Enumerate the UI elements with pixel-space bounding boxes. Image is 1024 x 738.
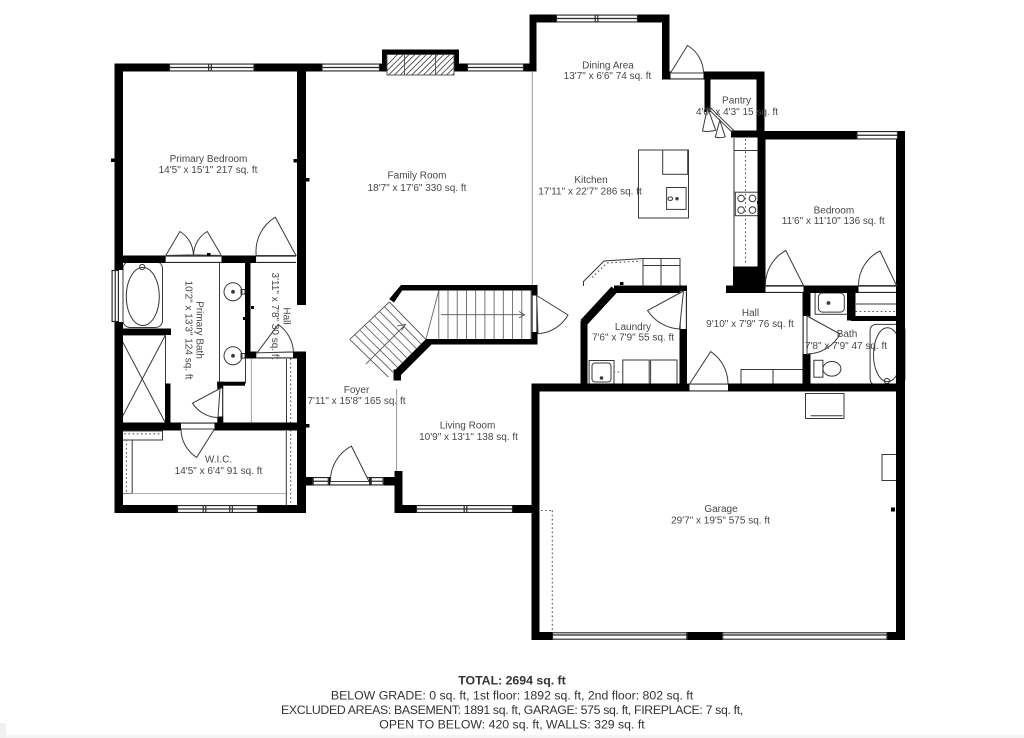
svg-text:TOTAL: 2694 sq. ft: TOTAL: 2694 sq. ft (458, 673, 566, 687)
svg-text:EXCLUDED AREAS: BASEMENT: 1891: EXCLUDED AREAS: BASEMENT: 1891 sq. ft, G… (281, 703, 743, 717)
svg-text:Family Room: Family Room (388, 171, 447, 182)
svg-text:W.I.C.: W.I.C. (205, 455, 232, 466)
svg-text:Garage: Garage (704, 504, 738, 515)
svg-text:4'0" x 4'3" 15 sq. ft: 4'0" x 4'3" 15 sq. ft (696, 107, 778, 118)
svg-text:17'11" x 22'7" 286 sq. ft: 17'11" x 22'7" 286 sq. ft (538, 187, 642, 198)
svg-text:3'11" x 7'8" 30 sq. ft: 3'11" x 7'8" 30 sq. ft (269, 273, 280, 360)
svg-text:Primary Bedroom: Primary Bedroom (170, 154, 248, 165)
svg-text:Bedroom: Bedroom (814, 205, 855, 216)
svg-text:11'6" x 11'10" 136 sq. ft: 11'6" x 11'10" 136 sq. ft (782, 216, 885, 227)
svg-text:14'5" x 6'4" 91 sq. ft: 14'5" x 6'4" 91 sq. ft (175, 466, 263, 477)
svg-text:10'9" x 13'1" 138 sq. ft: 10'9" x 13'1" 138 sq. ft (419, 432, 518, 443)
svg-text:Kitchen: Kitchen (574, 175, 607, 186)
svg-text:Primary Bath: Primary Bath (194, 301, 205, 359)
svg-text:7'6" x 7'9" 55 sq. ft: 7'6" x 7'9" 55 sq. ft (592, 333, 674, 344)
svg-text:7'11" x 15'8" 165 sq. ft: 7'11" x 15'8" 165 sq. ft (307, 396, 405, 407)
svg-text:OPEN TO BELOW: 420 sq. ft, WAL: OPEN TO BELOW: 420 sq. ft, WALLS: 329 sq… (379, 717, 645, 731)
svg-text:13'7" x 6'6" 74 sq. ft: 13'7" x 6'6" 74 sq. ft (564, 71, 652, 82)
svg-text:7'8" x 7'9" 47 sq. ft: 7'8" x 7'9" 47 sq. ft (805, 341, 887, 352)
svg-text:14'5" x 15'1" 217 sq. ft: 14'5" x 15'1" 217 sq. ft (159, 165, 258, 176)
svg-text:Foyer: Foyer (344, 385, 370, 396)
svg-text:Living Room: Living Room (440, 421, 496, 432)
svg-text:Hall: Hall (742, 308, 759, 319)
svg-text:Bath: Bath (837, 329, 858, 340)
svg-text:9'10" x 7'9" 76 sq. ft: 9'10" x 7'9" 76 sq. ft (706, 319, 794, 330)
svg-text:10'2" x 13'3" 124 sq. ft: 10'2" x 13'3" 124 sq. ft (183, 281, 194, 380)
svg-text:Pantry: Pantry (722, 96, 751, 107)
svg-text:18'7" x 17'6" 330 sq. ft: 18'7" x 17'6" 330 sq. ft (368, 183, 467, 194)
svg-text:29'7" x 19'5" 575 sq. ft: 29'7" x 19'5" 575 sq. ft (671, 516, 770, 527)
svg-text:Hall: Hall (281, 307, 292, 324)
svg-text:Laundry: Laundry (615, 322, 651, 333)
svg-text:BELOW GRADE: 0 sq. ft, 1st flo: BELOW GRADE: 0 sq. ft, 1st floor: 1892 s… (331, 688, 694, 702)
